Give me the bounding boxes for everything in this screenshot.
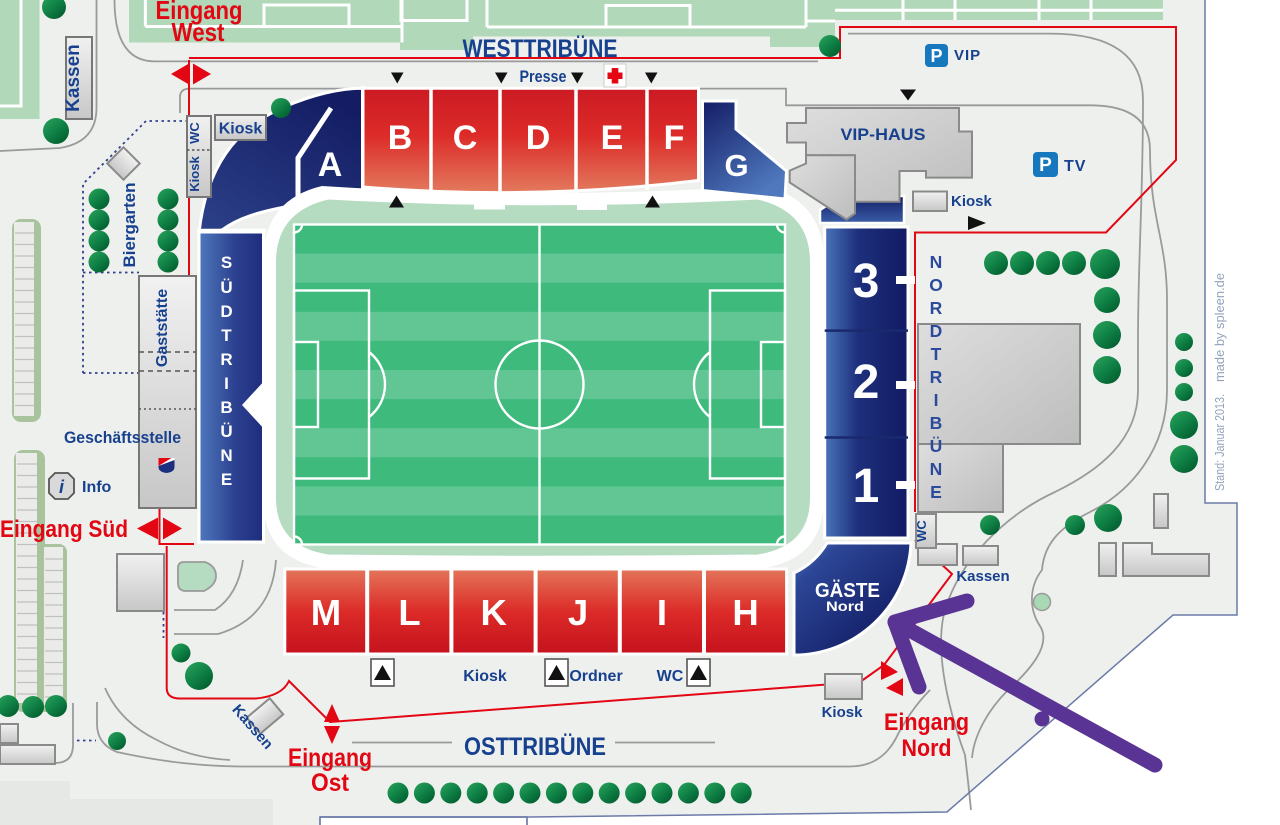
svg-text:B: B [388,119,413,157]
svg-text:Ost: Ost [311,769,350,797]
svg-text:T: T [931,344,942,364]
svg-text:L: L [398,592,420,633]
svg-text:I: I [224,374,229,393]
svg-text:Kiosk: Kiosk [187,156,202,192]
svg-text:made by spleen.de: made by spleen.de [1212,273,1227,382]
svg-text:Kiosk: Kiosk [822,704,864,721]
svg-text:Biergarten: Biergarten [120,182,139,267]
svg-text:WESTTRIBÜNE: WESTTRIBÜNE [463,34,618,63]
svg-text:F: F [664,119,685,157]
svg-text:S: S [221,253,232,272]
svg-text:Ü: Ü [220,278,232,297]
svg-text:C: C [453,119,478,157]
svg-text:E: E [221,470,232,489]
svg-text:VIP: VIP [954,47,981,64]
svg-text:N: N [220,446,232,465]
svg-text:Presse: Presse [520,68,567,86]
svg-text:TV: TV [1064,158,1086,175]
svg-text:E: E [601,119,624,157]
svg-text:Stand: Januar 2013.: Stand: Januar 2013. [1212,394,1227,491]
svg-text:Kiosk: Kiosk [951,193,993,210]
svg-text:K: K [481,592,508,633]
svg-text:Info: Info [82,479,112,496]
svg-text:O: O [929,275,943,295]
svg-text:I: I [934,390,939,410]
svg-text:H: H [732,592,758,633]
svg-text:WC: WC [657,668,684,685]
svg-text:J: J [568,592,588,633]
svg-text:Ordner: Ordner [569,668,622,685]
svg-text:R: R [930,298,943,318]
svg-text:Ü: Ü [220,422,232,441]
svg-text:T: T [221,326,232,345]
svg-text:Kiosk: Kiosk [463,668,507,685]
svg-text:3: 3 [853,255,880,308]
svg-text:Ü: Ü [930,436,943,456]
svg-text:WC: WC [187,122,202,144]
svg-text:B: B [930,413,943,433]
svg-text:A: A [318,146,343,184]
svg-text:I: I [657,592,667,633]
svg-text:Nord: Nord [902,735,952,762]
svg-text:Geschäftsstelle: Geschäftsstelle [64,429,181,447]
svg-text:Gaststätte: Gaststätte [154,289,171,367]
svg-text:E: E [930,482,942,502]
svg-text:Nord: Nord [826,598,864,614]
svg-text:Eingang: Eingang [884,709,969,736]
svg-text:Kassen: Kassen [63,44,84,112]
svg-text:WC: WC [914,520,929,542]
svg-text:M: M [311,592,341,633]
svg-text:D: D [526,119,551,157]
svg-text:West: West [172,17,225,47]
svg-text:N: N [930,459,943,479]
svg-text:Kiosk: Kiosk [219,121,263,138]
svg-text:P: P [1039,155,1052,176]
svg-text:VIP-HAUS: VIP-HAUS [841,126,926,144]
svg-text:B: B [220,398,232,417]
svg-text:2: 2 [853,356,880,409]
svg-text:D: D [220,302,232,321]
svg-text:Eingang: Eingang [288,744,372,772]
svg-text:G: G [724,148,748,183]
svg-text:OSTTRIBÜNE: OSTTRIBÜNE [464,732,606,761]
svg-text:N: N [930,252,943,272]
svg-text:R: R [930,367,943,387]
svg-text:Kassen: Kassen [956,568,1009,585]
svg-text:Eingang Süd: Eingang Süd [0,516,128,543]
svg-text:P: P [930,46,942,66]
svg-text:R: R [220,350,232,369]
svg-text:1: 1 [853,460,880,513]
svg-text:D: D [930,321,943,341]
